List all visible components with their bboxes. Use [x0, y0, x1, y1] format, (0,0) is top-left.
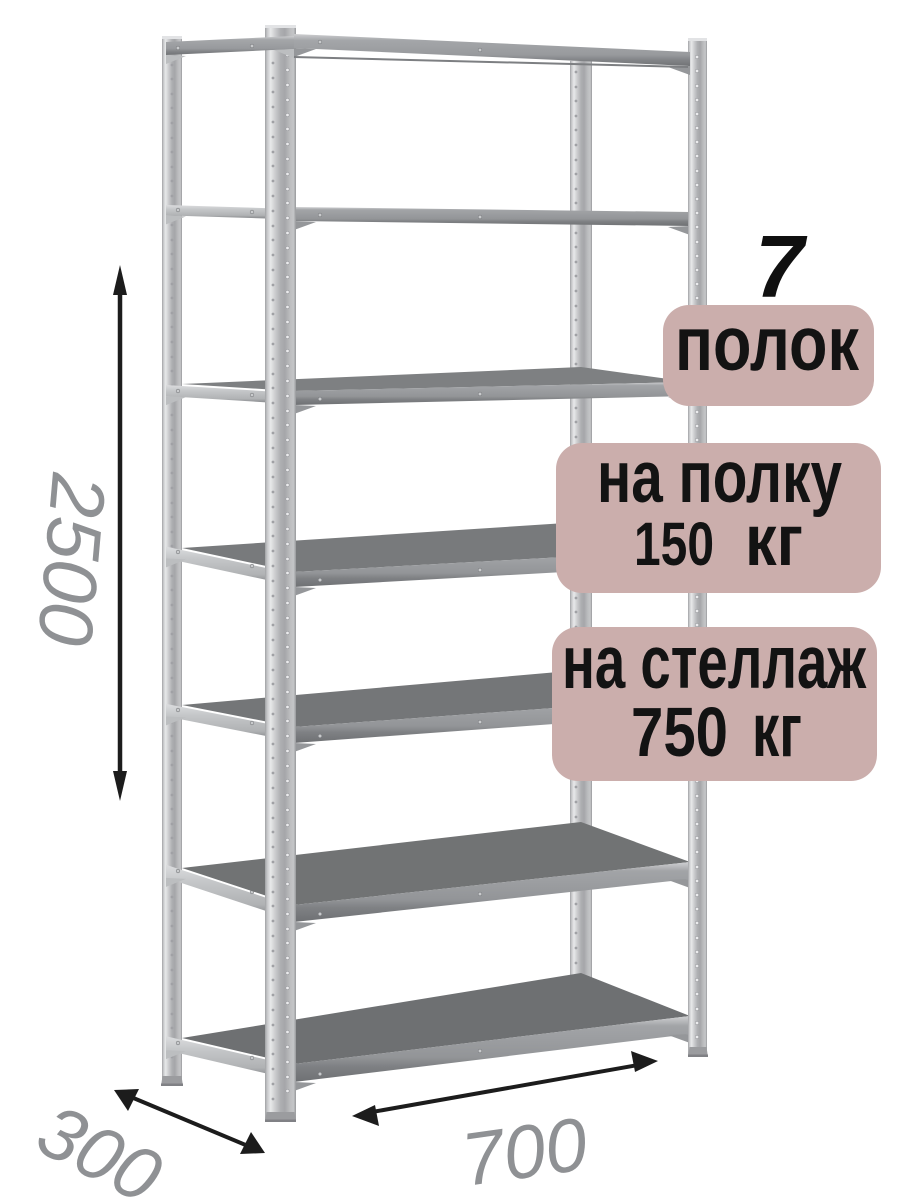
- svg-text:на полку: на полку: [597, 437, 842, 518]
- svg-text:700: 700: [457, 1101, 593, 1200]
- svg-text:кг: кг: [752, 688, 802, 773]
- svg-text:150: 150: [634, 510, 714, 578]
- svg-text:кг: кг: [745, 501, 803, 581]
- svg-text:полок: полок: [675, 301, 859, 387]
- svg-text:на стеллаж: на стеллаж: [562, 620, 867, 704]
- svg-text:2500: 2500: [21, 470, 122, 649]
- svg-text:750: 750: [631, 693, 728, 771]
